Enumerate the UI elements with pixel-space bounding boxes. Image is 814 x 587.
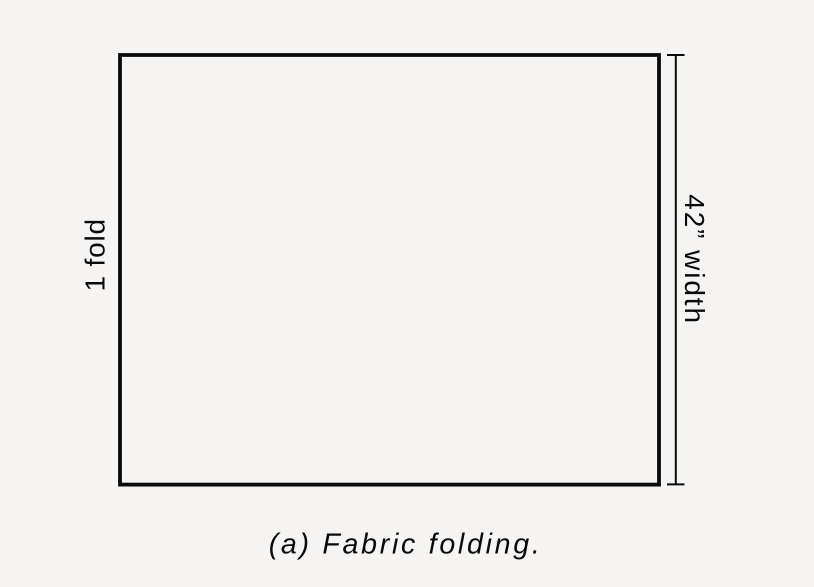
svg-text:1 fold: 1 fold — [80, 218, 111, 291]
svg-text:(a) Fabric folding.: (a) Fabric folding. — [269, 529, 543, 561]
svg-text:42” width: 42” width — [679, 194, 710, 325]
